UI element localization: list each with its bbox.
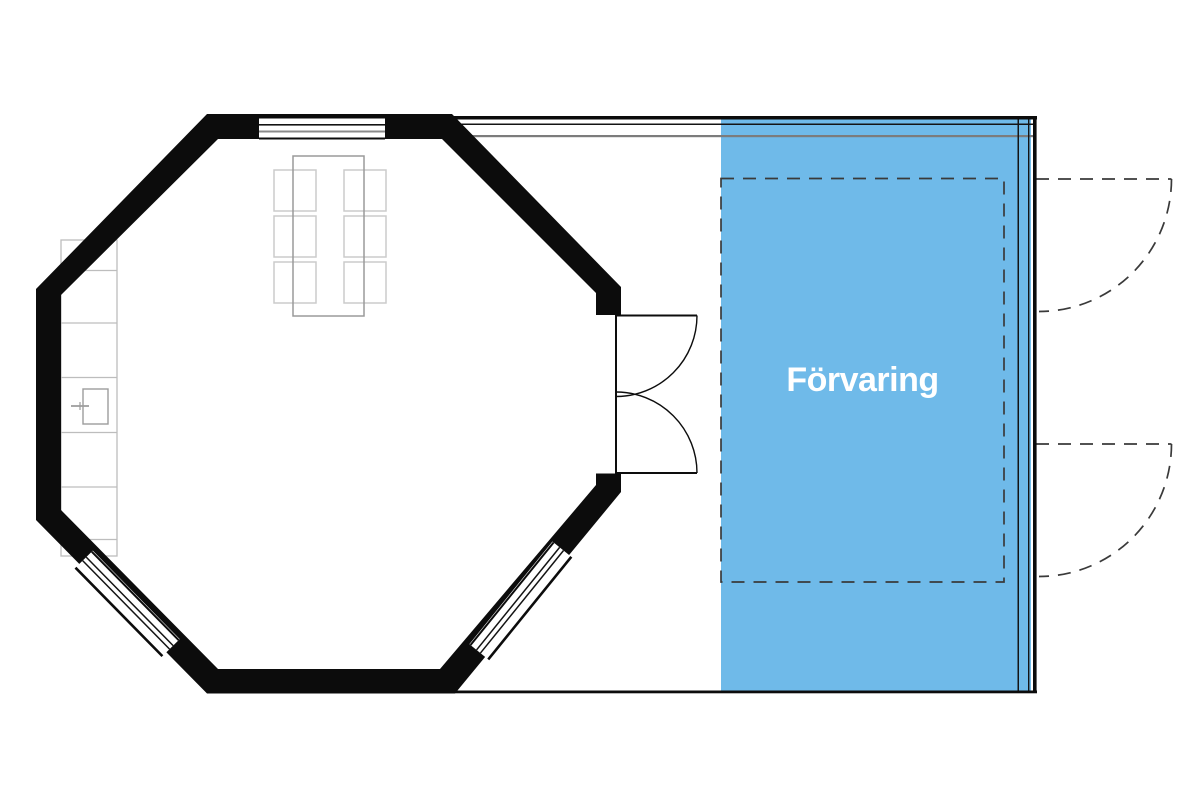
counter-run (61, 240, 117, 556)
floor-plan-svg (0, 0, 1200, 800)
wing-inner-top-line (455, 124, 1033, 126)
storage-area-fill (721, 119, 1031, 691)
window-inner-line (259, 138, 385, 140)
exterior-door-arc-top (1039, 179, 1172, 312)
window-stripe-gray (259, 131, 385, 133)
wing-inner-right-line-1 (1018, 119, 1020, 691)
window-stripe (259, 124, 385, 126)
wing-inner-right-line-2 (1028, 119, 1029, 691)
wing-outer-wall-bottom (452, 691, 1037, 694)
wing-outer-wall-right (1033, 116, 1037, 693)
interior-double-door (593, 315, 697, 474)
door-swing-arc-bottom (616, 392, 697, 473)
exterior-door-swing-top (1036, 179, 1172, 312)
floor-plan: Förvaring (0, 0, 1200, 800)
wing-outer-wall-top (452, 116, 1037, 120)
window-outer-line (259, 114, 385, 119)
exterior-door-swing-bottom (1036, 444, 1172, 577)
exterior-door-arc-bottom (1039, 444, 1172, 577)
door-opening (593, 315, 623, 474)
door-swing-arc-top (616, 316, 697, 397)
octagon-room (36, 114, 697, 694)
window-top (259, 114, 385, 142)
beam-line (455, 135, 1033, 137)
